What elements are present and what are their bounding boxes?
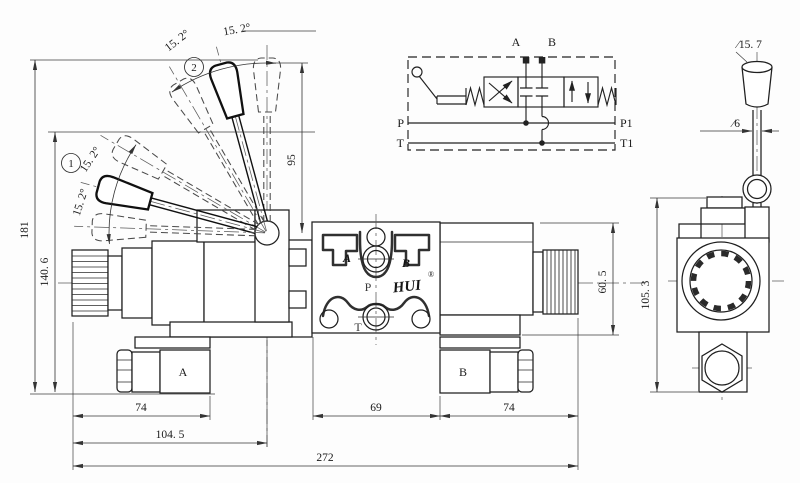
valve-technical-drawing: 15. 2° 15. 2° 15. 2° 15. 2° 2 1 A B P [0, 0, 800, 483]
lever-symbol-arm [419, 76, 466, 104]
stub-b-plug [539, 57, 546, 64]
front-view: 15. 2° 15. 2° 15. 2° 15. 2° 2 1 A B P [19, 22, 648, 470]
right-block [440, 223, 533, 315]
right-knurled-cap [543, 250, 578, 314]
plate-port-b-label: B [401, 256, 410, 270]
spring-right [598, 88, 616, 105]
port-face-plate: A B P T HUI ® [312, 214, 440, 345]
left-subplate [170, 322, 292, 337]
connector-b-block: B [440, 337, 533, 393]
angle-label-lever2-right: 15. 2° [222, 22, 252, 39]
schematic-p1-label: P1 [620, 116, 633, 130]
connector-a-label: A [179, 365, 188, 379]
b-top-tab [440, 337, 520, 348]
schematic-t1-label: T1 [620, 136, 633, 150]
t-connection-hop [542, 107, 549, 143]
dim-140-6: 140. 6 [39, 257, 51, 286]
dim-104-5: 104. 5 [156, 429, 185, 441]
valve-box-center [518, 77, 564, 107]
a-connector-cap [117, 350, 132, 392]
side-cap-top [707, 197, 742, 208]
schematic-p-label: P [397, 116, 404, 130]
crossed-arrows [489, 81, 512, 101]
dim-74-right: 74 [503, 402, 515, 414]
position-1-number: 1 [68, 158, 74, 170]
a-connector-mid [132, 352, 160, 392]
lever-symbol-knob [412, 67, 422, 77]
dim-95: 95 [286, 154, 298, 166]
angle-label-lever1-upper: 15. 2° [78, 145, 104, 175]
side-bracket [745, 207, 769, 242]
schematic-a-label: A [512, 35, 521, 49]
bracket-tab-upper [289, 249, 306, 266]
dim-knob-dia: ∕15. 7 [734, 39, 762, 51]
dim-60-5: 60. 5 [597, 270, 609, 293]
side-view: ∕15. 7 ∕6 105. 3 [640, 39, 784, 402]
position-2-number: 2 [191, 62, 197, 74]
handle-knob-top [742, 62, 772, 73]
dim-181: 181 [19, 221, 31, 239]
plate-port-p-label: P [365, 280, 372, 294]
a-top-tab [135, 337, 210, 348]
b-connector-mid [490, 352, 518, 392]
registered-mark: ® [428, 270, 434, 279]
connector-a-block: A [117, 337, 210, 393]
hydraulic-schematic: A B P T P1 T1 [397, 35, 634, 150]
dim-rod-dia: ∕6 [729, 118, 740, 130]
drawing-canvas: 15. 2° 15. 2° 15. 2° 15. 2° 2 1 A B P [0, 0, 800, 483]
left-collar [108, 256, 122, 310]
crossed-arrows-2 [489, 83, 512, 103]
left-solenoid-assembly [72, 241, 204, 325]
center-blocked-ports [520, 77, 548, 107]
side-cap-mid [701, 208, 745, 224]
right-collar [533, 252, 543, 312]
left-knurled-cap [72, 250, 108, 316]
t-junction-dot [539, 140, 545, 146]
plate-port-a-label: A [342, 251, 351, 265]
dim-69: 69 [370, 402, 382, 414]
knob-dia-leader [736, 52, 748, 63]
stub-a-plug [523, 57, 530, 64]
valve-box-right [564, 77, 598, 107]
dim-74-left: 74 [135, 402, 147, 414]
left-solenoid-block [152, 241, 204, 325]
dim-105-3: 105. 3 [640, 280, 652, 309]
angle-label-lever2-left: 15. 2° [163, 27, 192, 54]
brand-logo: HUI [391, 277, 423, 296]
plate-port-t-label: T [354, 320, 362, 334]
dim-272: 272 [316, 452, 334, 464]
p-junction-dot [523, 120, 529, 126]
left-tube [122, 248, 152, 318]
bracket-tab-lower [289, 291, 306, 308]
b-connector-cap [518, 350, 533, 392]
valve-box-left [484, 77, 518, 107]
angle-label-lever1-lower: 15. 2° [71, 187, 91, 217]
schematic-b-label: B [548, 35, 556, 49]
connector-b-label: B [459, 365, 467, 379]
spring-left [466, 88, 484, 105]
schematic-t-label: T [397, 136, 405, 150]
right-subplate [440, 315, 520, 335]
